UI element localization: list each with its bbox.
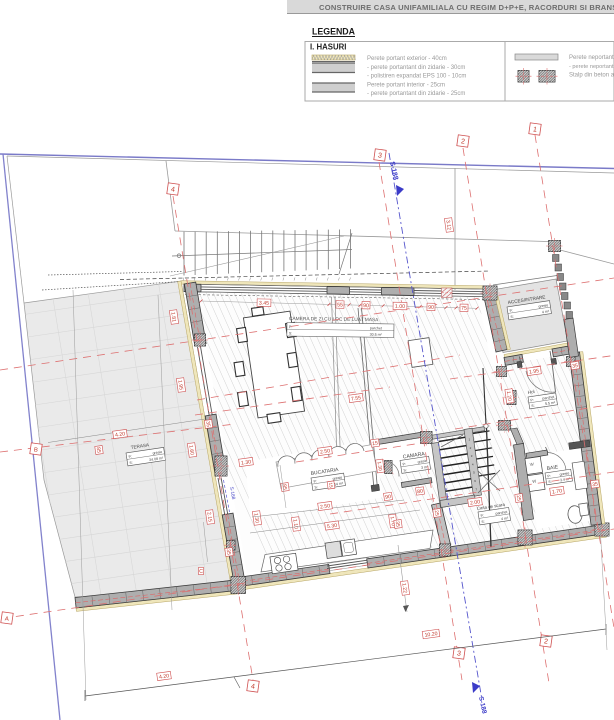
svg-text:25: 25	[515, 495, 522, 502]
svg-text:Stalp din beton armat: Stalp din beton armat	[569, 73, 614, 79]
svg-text:90: 90	[428, 305, 434, 311]
svg-text:P:: P:	[313, 479, 317, 483]
svg-text:35: 35	[204, 421, 211, 428]
svg-text:55: 55	[337, 302, 343, 308]
svg-text:P:: P:	[128, 454, 132, 458]
svg-text:35: 35	[572, 363, 579, 370]
svg-text:1.00: 1.00	[395, 304, 405, 310]
svg-text:S:: S:	[548, 480, 552, 484]
svg-text:W: W	[532, 478, 537, 484]
svg-text:I. HASURI: I. HASURI	[310, 43, 346, 52]
svg-text:75: 75	[461, 306, 467, 312]
svg-text:35: 35	[592, 482, 599, 489]
svg-text:P:: P:	[530, 398, 534, 402]
svg-text:P:: P:	[509, 308, 513, 312]
svg-text:25: 25	[433, 510, 440, 517]
svg-text:Perete neportant - 15cm: Perete neportant - 15cm	[569, 55, 614, 61]
svg-text:90: 90	[385, 494, 392, 501]
svg-text:Perete portant exterior - 40cm: Perete portant exterior - 40cm	[367, 56, 447, 62]
svg-text:3.45: 3.45	[259, 301, 269, 307]
svg-text:S:: S:	[510, 315, 514, 319]
svg-text:LEGENDA: LEGENDA	[312, 27, 356, 37]
svg-text:- perete portantant din zidari: - perete portantant din zidarie - 25cm	[367, 91, 465, 97]
svg-text:C: C	[199, 569, 203, 575]
svg-text:S:: S:	[481, 520, 485, 524]
svg-text:Perete portant interior - 25cm: Perete portant interior - 25cm	[367, 82, 445, 88]
svg-text:S:: S:	[289, 332, 292, 336]
svg-text:P:: P:	[547, 474, 551, 478]
svg-text:S:: S:	[531, 404, 535, 408]
svg-text:35: 35	[225, 549, 232, 556]
svg-text:85: 85	[281, 484, 288, 491]
svg-text:- perete neportant din zidarie: - perete neportant din zidarie	[569, 64, 614, 70]
svg-text:80: 80	[417, 489, 424, 496]
svg-text:W: W	[529, 461, 534, 467]
svg-text:S:: S:	[403, 468, 407, 472]
svg-text:P:: P:	[289, 325, 292, 329]
svg-text:15: 15	[372, 441, 379, 448]
svg-text:CONSTRUIRE CASA UNIFAMILIALA C: CONSTRUIRE CASA UNIFAMILIALA CU REGIM D+…	[319, 3, 614, 12]
svg-text:90: 90	[363, 303, 369, 309]
svg-text:30.5 m²: 30.5 m²	[370, 333, 383, 337]
svg-text:Hol: Hol	[527, 389, 535, 395]
svg-text:S:: S:	[314, 485, 318, 489]
svg-text:P:: P:	[402, 462, 406, 466]
svg-text:- perete portantant din zidari: - perete portantant din zidarie - 30cm	[367, 65, 465, 71]
svg-text:35: 35	[394, 521, 401, 528]
svg-text:A: A	[4, 616, 9, 623]
svg-text:S:: S:	[129, 461, 133, 465]
svg-text:85: 85	[95, 447, 102, 454]
svg-text:P:: P:	[480, 513, 484, 517]
svg-text:- polistiren expandat EPS 100: - polistiren expandat EPS 100 - 10cm	[367, 74, 466, 80]
svg-text:B: B	[33, 447, 38, 454]
svg-text:parchet: parchet	[370, 326, 382, 330]
